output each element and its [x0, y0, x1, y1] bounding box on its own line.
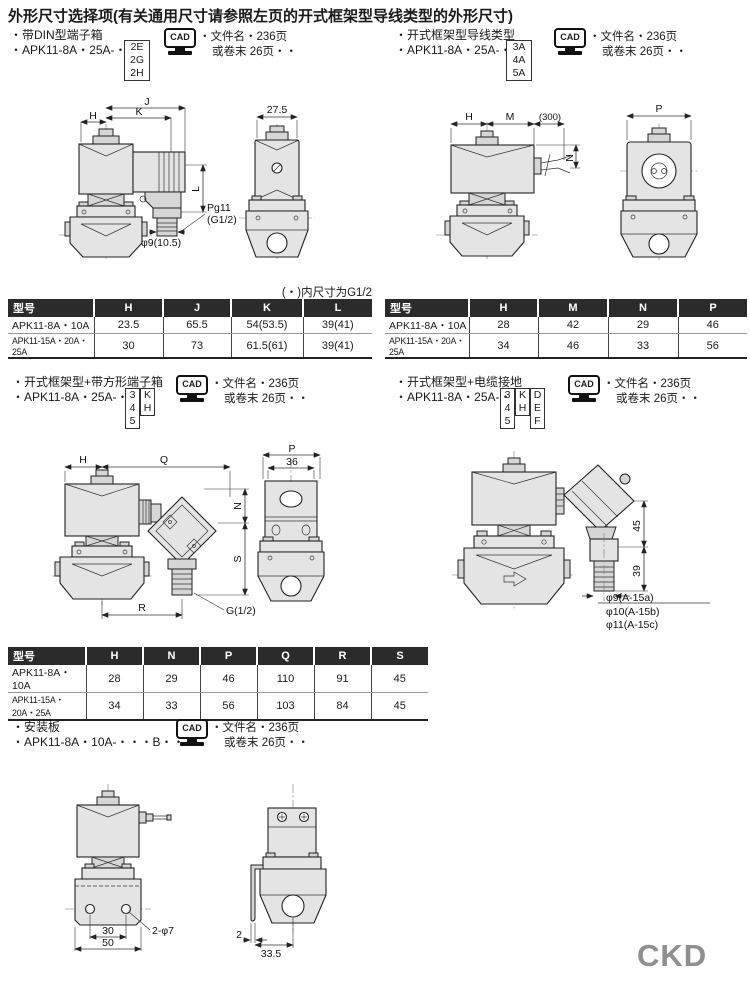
cell: 34: [469, 334, 538, 359]
cad-icon-base: [168, 51, 192, 55]
option-e: E: [531, 402, 544, 415]
cell: 29: [608, 317, 678, 334]
cad-file-line1: ・文件名・236页: [211, 721, 309, 736]
cad-icon-base: [180, 742, 204, 746]
cell: 84: [314, 693, 371, 721]
section-mp-heading: ・安装板: [12, 720, 60, 735]
sq-front-view: [52, 469, 216, 605]
cad-file-line2: 或卷末 26页・・: [211, 392, 309, 407]
option-5a: 5A: [507, 67, 531, 80]
col-header-h: H: [86, 647, 143, 665]
dim-label-45: 45: [631, 520, 643, 532]
cell: 56: [678, 334, 747, 359]
cell: 34: [86, 693, 143, 721]
cad-file-note: ・文件名・236页 或卷末 26页・・: [603, 377, 701, 407]
cad-icon-label: CAD: [164, 28, 196, 48]
cad-file-line2: 或卷末 26页・・: [199, 45, 297, 60]
dim-label-50: 50: [102, 937, 114, 949]
dimension-table-din: 型号 H J K L APK11-8A・10A 23.5 65.5 54(53.…: [8, 299, 372, 359]
model-cell: APK11-15A・20A・25A: [8, 334, 94, 359]
cad-icon-label: CAD: [554, 28, 586, 48]
cad-icon: CAD: [164, 28, 196, 55]
ckd-logo: CKD: [637, 938, 707, 974]
cad-icon: CAD: [568, 375, 600, 402]
mp-front-view: [65, 784, 171, 930]
lead-side-view: P: [620, 103, 698, 260]
dim-label-27-5: 27.5: [267, 104, 288, 116]
col-header-j: J: [163, 299, 231, 317]
option-2e: 2E: [125, 41, 149, 54]
cad-file-line1: ・文件名・236页: [211, 377, 309, 392]
cell: 33: [608, 334, 678, 359]
dim-label-j: J: [144, 96, 149, 108]
cell: 46: [200, 665, 257, 693]
cell: 65.5: [163, 317, 231, 334]
cad-file-line1: ・文件名・236页: [589, 30, 687, 45]
section-din-heading: ・带DIN型端子箱: [10, 28, 103, 43]
cell: 54(53.5): [231, 317, 303, 334]
cell: 28: [469, 317, 538, 334]
table-row: APK11-8A・10A 28 42 29 46: [385, 317, 747, 334]
col-header-m: M: [538, 299, 608, 317]
dim-label-hole-a15c: φ11(A-15c): [606, 619, 658, 631]
model-cell: APK11-8A・10A: [8, 665, 86, 693]
option-3: 3: [501, 389, 514, 402]
option-4a: 4A: [507, 54, 531, 67]
option-4: 4: [501, 402, 514, 415]
col-header-n: N: [608, 299, 678, 317]
cell: 45: [371, 665, 428, 693]
cell: 46: [678, 317, 747, 334]
dim-label-l: L: [190, 186, 202, 192]
section-lead-heading: ・开式框架型导线类型: [395, 28, 515, 43]
section-cg-option-box: 3 4 5 K H D E F: [500, 388, 545, 429]
section-sq-model: ・APK11-8A・25A-・: [12, 390, 129, 405]
col-header-h: H: [469, 299, 538, 317]
dim-label-p: P: [655, 103, 662, 115]
section-cg-model: ・APK11-8A・25A-・: [395, 390, 512, 405]
cad-file-note: ・文件名・236页 或卷末 26页・・: [211, 721, 309, 751]
sq-side-view: P 36: [258, 443, 324, 603]
cg-front-view: [452, 451, 576, 611]
cell: 91: [314, 665, 371, 693]
cell: 39(41): [303, 334, 372, 359]
cell: 61.5(61): [231, 334, 303, 359]
cad-icon-base: [558, 51, 582, 55]
dim-label-pg11-thread: (G1/2): [207, 214, 237, 226]
drawing-square-terminal: H Q N S R G(1/2) P 36: [12, 443, 344, 645]
option-4: 4: [126, 402, 139, 415]
cad-icon-label: CAD: [568, 375, 600, 395]
col-header-model: 型号: [8, 299, 94, 317]
option-2h: 2H: [125, 67, 149, 80]
dim-label-k: K: [135, 106, 142, 118]
option-2g: 2G: [125, 54, 149, 67]
cad-icon-label: CAD: [176, 719, 208, 739]
drawing-din-type: J K H L Pg11 (G1/2) φ9(10.5) 27.5: [57, 96, 315, 260]
cad-icon-base: [180, 398, 204, 402]
cell: 45: [371, 693, 428, 721]
col-header-q: Q: [257, 647, 314, 665]
cad-file-note: ・文件名・236页 或卷末 26页・・: [199, 30, 297, 60]
cad-file-line2: 或卷末 26页・・: [211, 736, 309, 751]
cad-file-note: ・文件名・236页 或卷末 26页・・: [211, 377, 309, 407]
mp-dimensions-side: 2 33.5: [236, 918, 293, 960]
option-f: F: [531, 415, 544, 428]
dim-label-p: P: [288, 443, 295, 455]
col-header-k: K: [231, 299, 303, 317]
note-g12: (・)内尺寸为G1/2: [210, 284, 372, 300]
option-h: H: [141, 402, 154, 415]
dim-label-hole-a15a: φ9(A-15a): [606, 592, 654, 604]
col-header-r: R: [314, 647, 371, 665]
dimension-table-square: 型号 H N P Q R S APK11-8A・10A 28 29 46 110…: [8, 647, 428, 721]
cell: 39(41): [303, 317, 372, 334]
dim-label-h: H: [79, 454, 87, 466]
drawing-cable-ground: 45 39 φ9(A-15a) φ10(A-15b) φ11(A-15c): [448, 443, 748, 645]
table-row: APK11-15A・20A・25A 30 73 61.5(61) 39(41): [8, 334, 372, 359]
col-header-s: S: [371, 647, 428, 665]
option-k: K: [141, 389, 154, 402]
dim-label-cable-hole: φ9(10.5): [141, 237, 181, 249]
dim-label-30: 30: [102, 925, 114, 937]
cell: 56: [200, 693, 257, 721]
cell: 110: [257, 665, 314, 693]
option-k: K: [516, 389, 529, 402]
din-side-view: 27.5: [239, 104, 315, 259]
dim-label-hole-a15b: φ10(A-15b): [606, 606, 660, 618]
table-row: APK11-8A・10A 28 29 46 110 91 45: [8, 665, 428, 693]
cell: 46: [538, 334, 608, 359]
dim-label-300: (300): [539, 112, 561, 123]
dimension-table-lead: 型号 H M N P APK11-8A・10A 28 42 29 46 APK1…: [385, 299, 747, 359]
model-cell: APK11-8A・10A: [385, 317, 469, 334]
cad-file-line1: ・文件名・236页: [603, 377, 701, 392]
cad-icon: CAD: [176, 719, 208, 746]
col-header-p: P: [200, 647, 257, 665]
table-row: APK11-15A・20A・25A 34 46 33 56: [385, 334, 747, 359]
option-d: D: [531, 389, 544, 402]
dim-label-h: H: [465, 111, 473, 123]
dim-label-s: S: [232, 555, 244, 562]
dim-label-33-5: 33.5: [261, 948, 282, 960]
cad-icon: CAD: [554, 28, 586, 55]
section-din-option-box: 2E 2G 2H: [124, 40, 150, 81]
cg-cable-ground-unit: [556, 465, 634, 601]
col-header-n: N: [143, 647, 200, 665]
cell: 73: [163, 334, 231, 359]
cell: 42: [538, 317, 608, 334]
drawing-lead-type: H M (300) N P: [424, 96, 748, 262]
section-lead-option-box: 3A 4A 5A: [506, 40, 532, 81]
option-h: H: [516, 402, 529, 415]
lead-front-view: [436, 122, 570, 260]
col-header-h: H: [94, 299, 163, 317]
dim-label-36: 36: [286, 456, 298, 468]
option-5: 5: [126, 415, 139, 428]
dim-label-39: 39: [631, 565, 643, 577]
dim-label-q: Q: [160, 454, 168, 466]
section-din-model: ・APK11-8A・25A-・: [10, 43, 127, 58]
dim-label-m: M: [506, 111, 515, 123]
dim-label-n: N: [564, 154, 576, 162]
cell: 28: [86, 665, 143, 693]
page-title: 外形尺寸选择项(有关通用尺寸请参照左页的开式框架型导线类型的外形尺寸): [8, 5, 513, 26]
col-header-l: L: [303, 299, 372, 317]
model-cell: APK11-15A・20A・25A: [385, 334, 469, 359]
dim-label-g12: G(1/2): [226, 605, 256, 617]
cell: 103: [257, 693, 314, 721]
dim-label-pg11: Pg11: [207, 202, 231, 214]
dim-label-2: 2: [236, 929, 242, 941]
option-3: 3: [126, 389, 139, 402]
col-header-p: P: [678, 299, 747, 317]
section-sq-option-box: 3 4 5 K H: [125, 388, 155, 429]
cell: 30: [94, 334, 163, 359]
col-header-model: 型号: [8, 647, 86, 665]
dim-label-r: R: [138, 602, 146, 614]
cad-icon-label: CAD: [176, 375, 208, 395]
drawing-mounting-plate: 30 50 2-φ7 2 33.5: [55, 782, 375, 960]
table-row: APK11-15A・20A・25A 34 33 56 103 84 45: [8, 693, 428, 721]
section-mp-model: ・APK11-8A・10A-・・・B・・: [12, 735, 185, 750]
col-header-model: 型号: [385, 299, 469, 317]
cad-icon-base: [572, 398, 596, 402]
dim-label-n: N: [232, 502, 244, 510]
cad-icon: CAD: [176, 375, 208, 402]
mp-side-view: [251, 784, 326, 932]
dim-label-holes: 2-φ7: [152, 925, 174, 937]
section-lead-model: ・APK11-8A・25A-・: [395, 43, 512, 58]
model-cell: APK11-8A・10A: [8, 317, 94, 334]
cad-file-note: ・文件名・236页 或卷末 26页・・: [589, 30, 687, 60]
option-5: 5: [501, 415, 514, 428]
cad-file-line2: 或卷末 26页・・: [589, 45, 687, 60]
table-row: APK11-8A・10A 23.5 65.5 54(53.5) 39(41): [8, 317, 372, 334]
cell: 29: [143, 665, 200, 693]
cad-file-line2: 或卷末 26页・・: [603, 392, 701, 407]
cad-file-line1: ・文件名・236页: [199, 30, 297, 45]
option-3a: 3A: [507, 41, 531, 54]
cell: 23.5: [94, 317, 163, 334]
dim-label-h: H: [89, 110, 97, 122]
cell: 33: [143, 693, 200, 721]
model-cell: APK11-15A・20A・25A: [8, 693, 86, 721]
